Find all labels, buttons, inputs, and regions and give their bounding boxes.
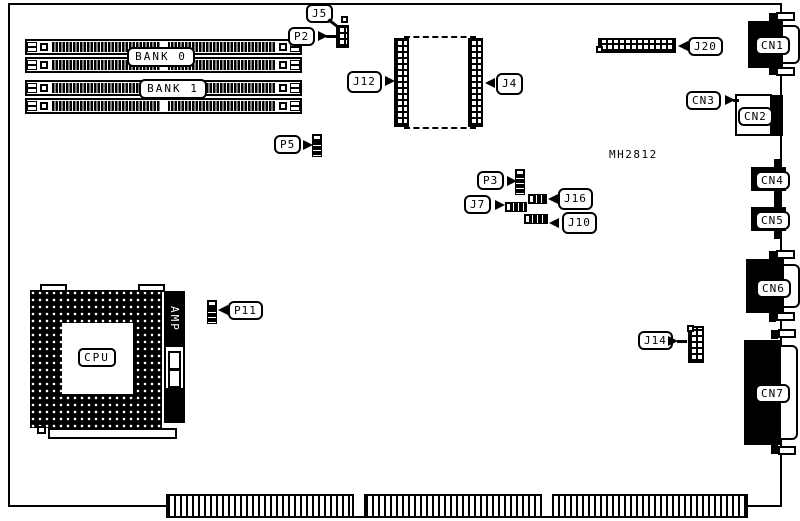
cn5-mount-nub [774, 199, 781, 207]
cn7-label: CN7 [755, 384, 790, 403]
cn5-label: CN5 [755, 211, 790, 230]
j12-label: J12 [347, 71, 382, 93]
j14-pin1 [687, 325, 694, 332]
edge-fingers [168, 496, 746, 516]
j4-pointer [485, 78, 495, 88]
cpu-socket-center: CPU [62, 323, 133, 394]
j10-label: J10 [562, 212, 597, 234]
cpu-label: CPU [78, 348, 116, 367]
p5-jumper [312, 134, 322, 157]
cn6-mount-nub [769, 313, 776, 322]
p2-label: P2 [288, 27, 315, 46]
p3-pointer [507, 176, 517, 186]
bank1-label: BANK 1 [139, 79, 207, 99]
cn1-top-tab [776, 12, 795, 21]
cn4-mount-nub [774, 191, 781, 199]
j10-jumper [524, 214, 548, 224]
p2-pointer-stub [326, 35, 336, 38]
amp-label: AMP [168, 306, 181, 325]
j7-jumper [505, 202, 527, 212]
edge-key-gap [540, 494, 554, 516]
card-edge-connector [166, 494, 748, 518]
simm-hook [40, 102, 48, 110]
cpu-socket-lever [48, 428, 177, 439]
cn5-mount-nub [774, 231, 781, 239]
j7-label: J7 [464, 195, 491, 214]
p3-label: P3 [477, 171, 504, 190]
cn2-label: CN2 [738, 107, 773, 126]
j12-pointer [385, 76, 395, 86]
simm-hook [279, 102, 287, 110]
cpu-socket: CPU [30, 290, 162, 428]
simm-hook [40, 84, 48, 92]
simm-latch [27, 83, 37, 93]
cn6-label: CN6 [756, 279, 791, 298]
simm-latch [290, 101, 300, 111]
cn4-mount-nub [774, 159, 781, 167]
cn7-bottom-tab [778, 446, 796, 455]
cn1-bottom-tab [776, 67, 795, 76]
cn1-mount-nub [769, 66, 776, 75]
cn6-bottom-tab [776, 312, 795, 321]
cn7-mount-nub [771, 330, 778, 339]
j16-label: J16 [558, 188, 593, 210]
j20-label: J20 [688, 37, 723, 56]
j4-pin-strip [468, 38, 483, 127]
simm-hook [279, 61, 287, 69]
p11-label: P11 [228, 301, 263, 320]
simm-pin-row [51, 101, 276, 111]
j12-pin-strip [394, 38, 409, 127]
cpu-socket-key [37, 426, 46, 434]
regulator-cell [168, 351, 181, 370]
edge-key-gap [352, 494, 366, 516]
regulator-cell [168, 369, 181, 388]
simm-hook [279, 43, 287, 51]
cn1-label: CN1 [755, 36, 790, 55]
p11-pointer [218, 305, 228, 315]
voltage-regulator-top: AMP [166, 293, 183, 347]
j10-pointer [549, 218, 559, 228]
cn7-top-tab [778, 329, 796, 338]
cn7-mount-nub [771, 445, 778, 454]
j5-header [341, 16, 348, 23]
p11-jumper [207, 300, 217, 324]
j4-label: J4 [496, 73, 523, 95]
simm-socket-row [25, 98, 302, 114]
voltage-regulator-bottom [166, 388, 183, 421]
chip-socket-outline [404, 36, 476, 129]
simm-latch [27, 42, 37, 52]
cn6-top-tab [776, 250, 795, 259]
part-number-text: MH2812 [609, 148, 658, 161]
j20-pin1 [596, 46, 603, 53]
cn4-label: CN4 [755, 171, 790, 190]
j14-pointer-stub [677, 340, 687, 343]
p5-pointer [303, 140, 313, 150]
bank0-label: BANK 0 [127, 47, 195, 67]
j7-pointer [495, 200, 505, 210]
cn6-mount-nub [769, 251, 776, 260]
simm-latch [290, 83, 300, 93]
motherboard-diagram: BANK 0 BANK 1 J5 P2 J12 J4 J20 CN1 CN3 C… [0, 0, 800, 521]
voltage-regulator: AMP [164, 291, 185, 423]
p2-header [336, 25, 349, 48]
simm-latch [27, 101, 37, 111]
cn3-pointer-stub [733, 99, 739, 102]
j20-pointer [678, 41, 688, 51]
j20-header [598, 38, 676, 53]
cpu-socket-tab [138, 284, 165, 292]
cpu-socket-tab [40, 284, 67, 292]
simm-hook [40, 43, 48, 51]
simm-hook [40, 61, 48, 69]
j16-pointer [548, 194, 558, 204]
simm-latch [27, 60, 37, 70]
cn1-mount-nub [769, 13, 776, 22]
p5-label: P5 [274, 135, 301, 154]
simm-latch [290, 60, 300, 70]
simm-hook [279, 84, 287, 92]
cn3-label: CN3 [686, 91, 721, 110]
j16-jumper [528, 194, 547, 204]
